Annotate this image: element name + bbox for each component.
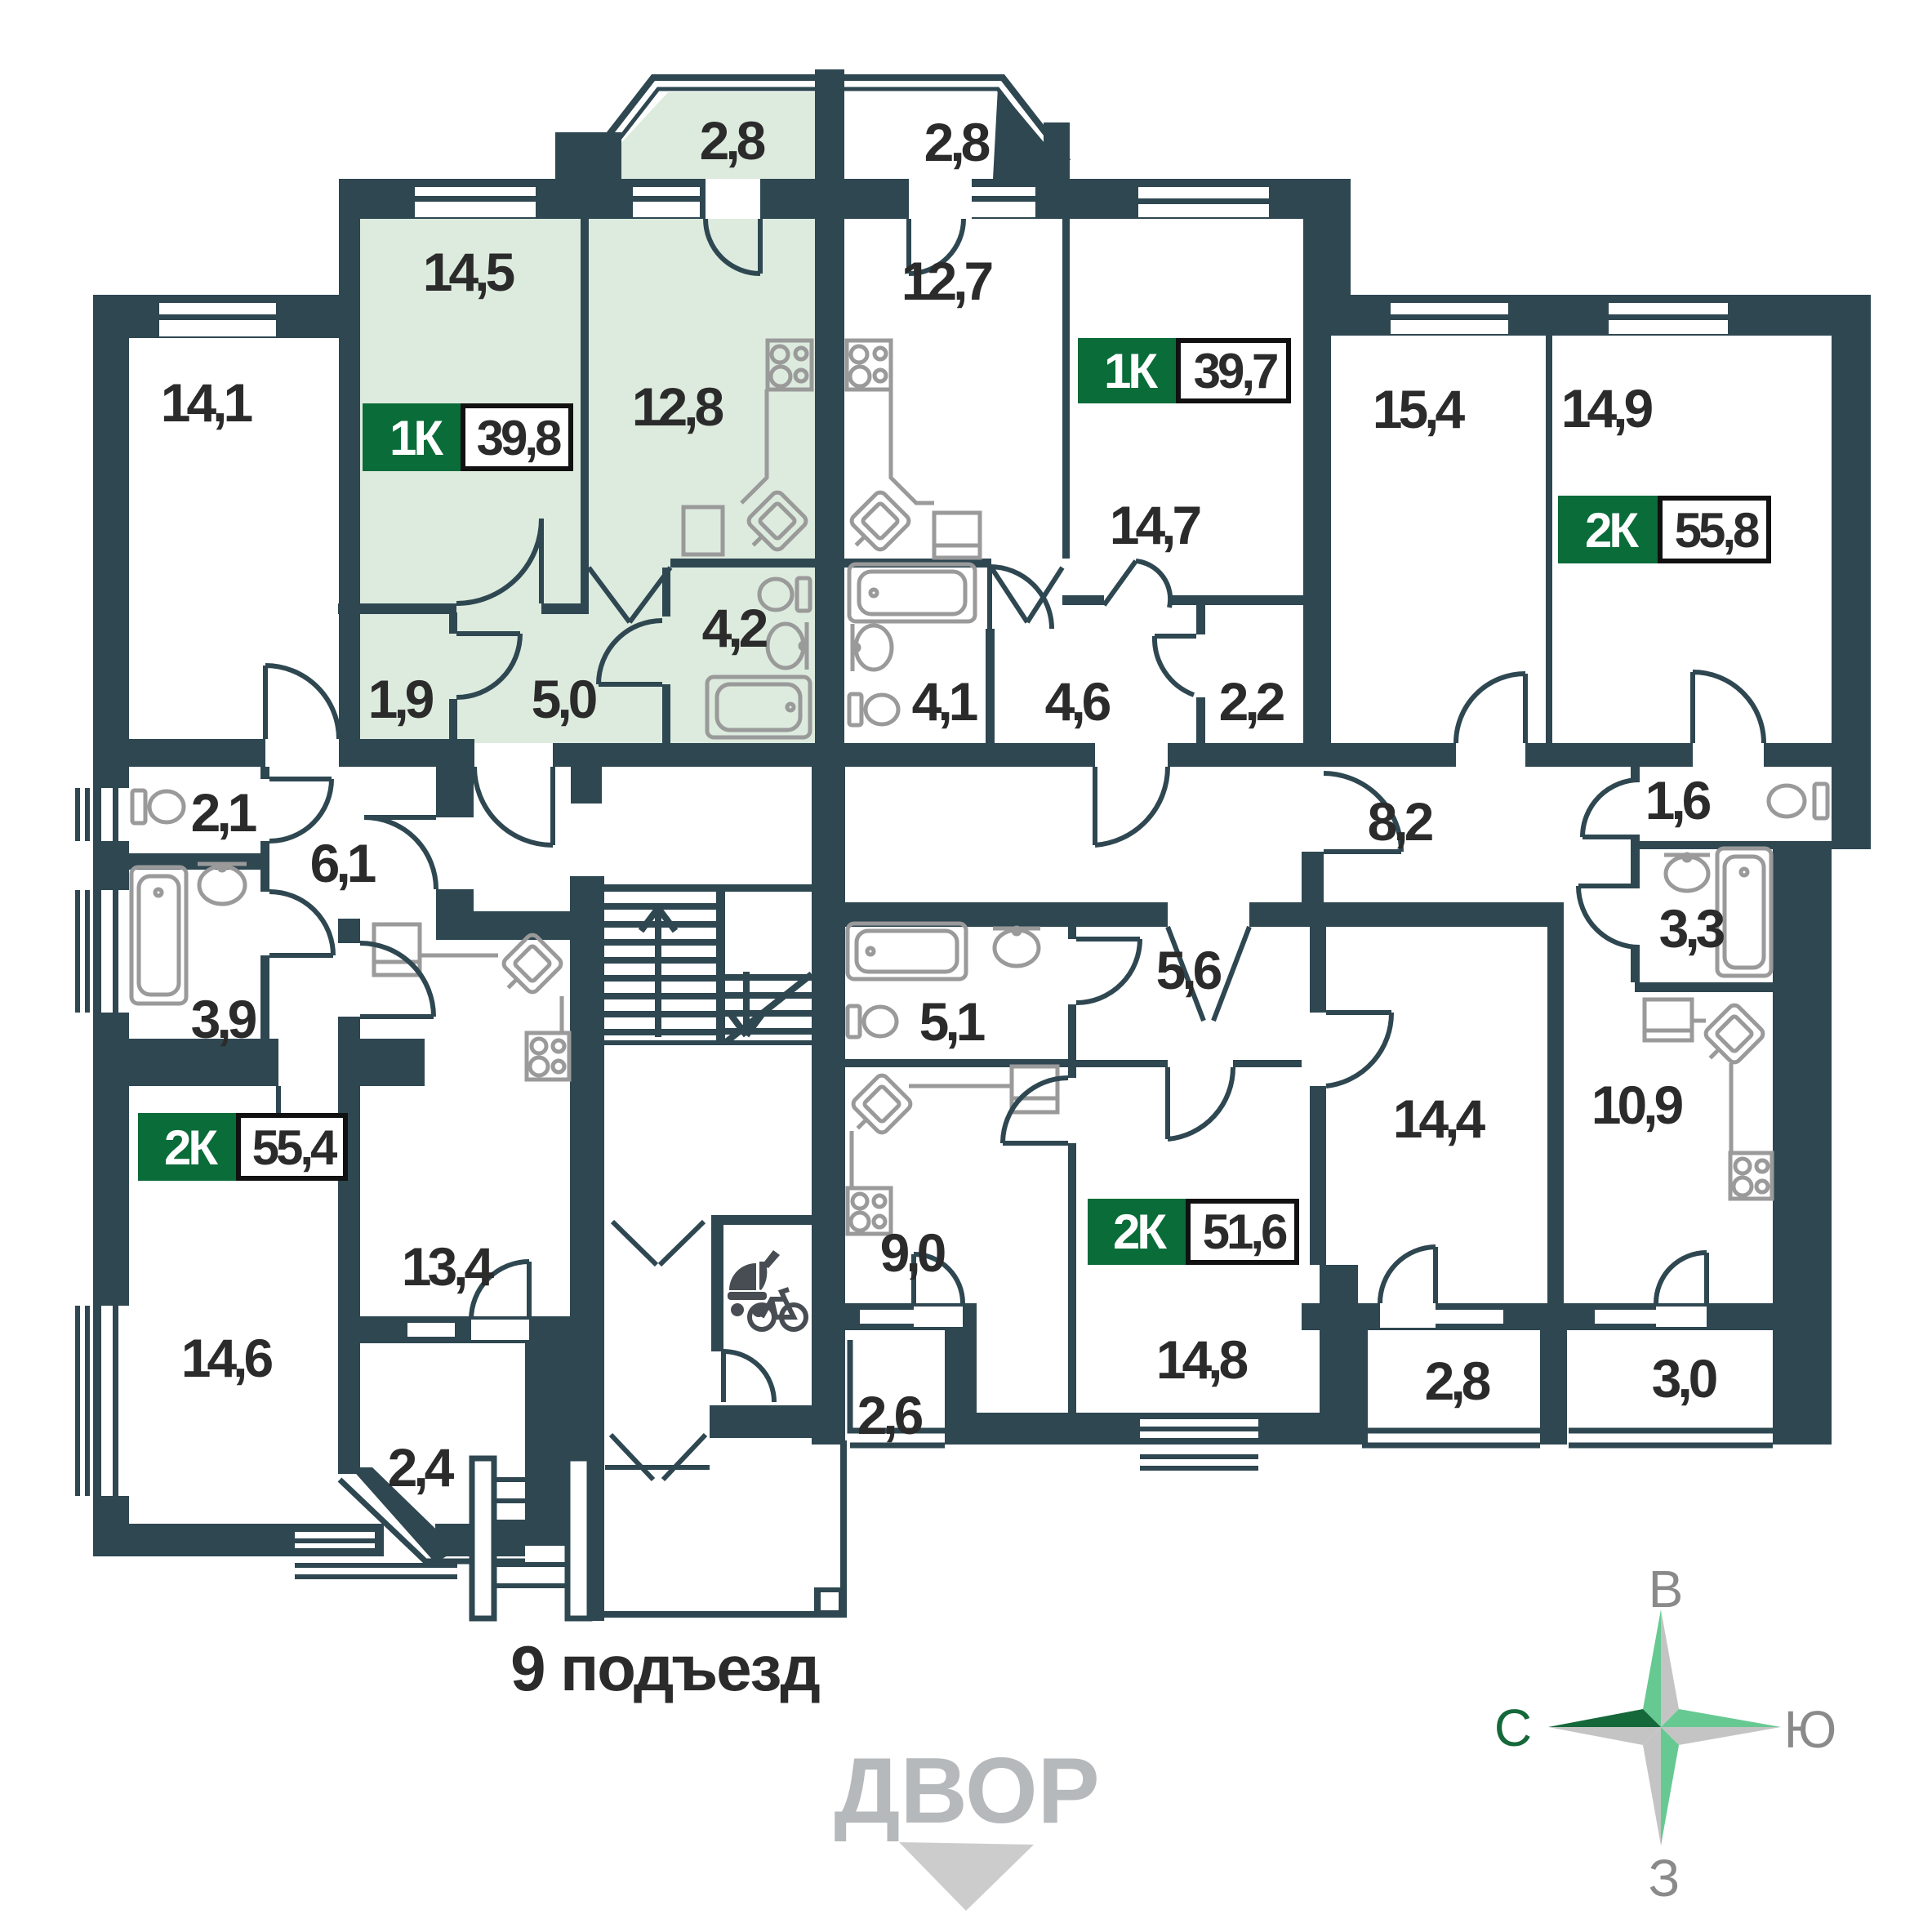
svg-text:2К: 2К [164, 1120, 218, 1175]
svg-text:5,0: 5,0 [532, 669, 596, 729]
svg-text:1К: 1К [390, 411, 443, 465]
svg-text:6,1: 6,1 [310, 833, 376, 893]
svg-text:С: С [1494, 1698, 1532, 1757]
svg-text:2,8: 2,8 [1425, 1351, 1490, 1411]
svg-text:2,8: 2,8 [924, 112, 990, 172]
svg-text:2К: 2К [1113, 1204, 1167, 1259]
svg-text:5,6: 5,6 [1156, 940, 1222, 1000]
svg-text:Ю: Ю [1784, 1700, 1837, 1759]
svg-text:51,6: 51,6 [1203, 1204, 1287, 1259]
svg-text:1,9: 1,9 [368, 669, 434, 729]
svg-text:2,4: 2,4 [388, 1437, 455, 1498]
svg-text:3,9: 3,9 [191, 989, 256, 1049]
svg-text:В: В [1649, 1560, 1684, 1618]
svg-text:14,4: 14,4 [1393, 1088, 1486, 1149]
svg-text:4,6: 4,6 [1045, 671, 1111, 732]
svg-text:39,7: 39,7 [1194, 344, 1277, 398]
svg-text:З: З [1649, 1849, 1680, 1908]
svg-text:55,8: 55,8 [1675, 503, 1759, 558]
svg-text:3,0: 3,0 [1652, 1348, 1716, 1409]
svg-text:8,2: 8,2 [1368, 791, 1433, 852]
svg-text:9 подъезд: 9 подъезд [510, 1632, 820, 1704]
svg-text:4,1: 4,1 [912, 671, 977, 732]
svg-text:3,3: 3,3 [1659, 898, 1725, 959]
svg-text:2,2: 2,2 [1219, 671, 1284, 732]
svg-text:ДВОР: ДВОР [834, 1739, 1099, 1843]
svg-text:14,8: 14,8 [1156, 1329, 1248, 1390]
svg-text:2,6: 2,6 [857, 1385, 923, 1445]
svg-text:55,4: 55,4 [252, 1120, 338, 1175]
svg-text:5,1: 5,1 [919, 991, 985, 1052]
svg-text:2К: 2К [1585, 503, 1639, 558]
svg-text:39,8: 39,8 [477, 411, 561, 465]
svg-text:15,4: 15,4 [1373, 379, 1466, 439]
svg-text:14,9: 14,9 [1561, 378, 1653, 438]
svg-text:13,4: 13,4 [402, 1236, 495, 1297]
svg-text:1К: 1К [1104, 344, 1158, 398]
svg-text:14,5: 14,5 [423, 242, 514, 302]
svg-text:12,7: 12,7 [901, 251, 992, 311]
svg-text:14,1: 14,1 [161, 372, 252, 433]
svg-text:10,9: 10,9 [1591, 1075, 1683, 1135]
svg-text:14,7: 14,7 [1110, 495, 1200, 555]
svg-text:4,2: 4,2 [702, 598, 768, 658]
svg-text:2,8: 2,8 [700, 110, 765, 171]
svg-text:2,1: 2,1 [191, 782, 256, 843]
svg-text:14,6: 14,6 [181, 1328, 273, 1388]
svg-text:9,0: 9,0 [880, 1222, 945, 1283]
svg-text:1,6: 1,6 [1645, 770, 1711, 830]
svg-text:12,8: 12,8 [632, 376, 723, 437]
